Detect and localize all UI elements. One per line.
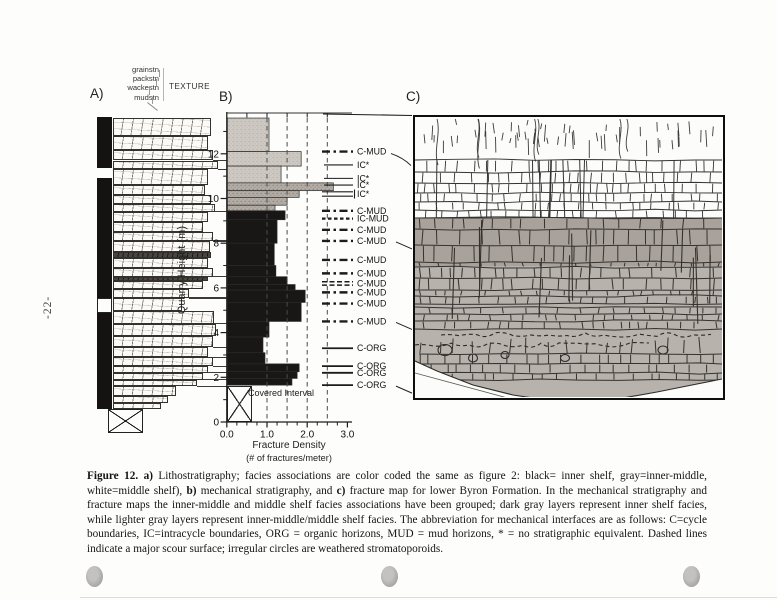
bed-boundary-marker [197,386,227,387]
bed-boundary-marker [213,160,262,161]
fracture-map-drawing [415,117,722,397]
binder-hole-dot [381,566,398,587]
caption-bold-segment: a) [144,470,153,482]
bed-boundary-marker [208,372,227,373]
x-axis-title-line2: (# of fractures/meter) [214,453,364,463]
litho-layer [113,357,213,366]
binder-hole-dot [86,566,103,587]
litho-layer [113,241,210,252]
litho-layer [113,169,208,185]
litho-layer [113,403,161,409]
litho-layer [113,195,211,204]
litho-layer [113,118,211,136]
litho-layer [113,386,176,396]
y-axis-title: Quarry Height (m) [176,190,192,350]
panel-c-label: C) [406,89,420,104]
litho-layer [113,396,168,403]
covered-interval-box-a [108,409,143,433]
bed-boundary-marker [215,211,262,212]
litho-layer [113,324,216,336]
litho-layer [113,298,182,311]
caption-segment: mechanical stratigraphy, and [196,485,336,497]
litho-layer [113,150,213,160]
litho-layer [113,311,214,323]
panel-b-label: B) [219,89,233,104]
x-axis-title-line1: Fracture Density [214,440,364,451]
caption-bold-segment: b) [186,485,196,497]
litho-layer [113,136,208,151]
bed-boundary-marker [189,297,262,298]
binder-hole-dot [683,566,700,587]
figure-12: -22- A) grainstn packstn wackestn mudstn… [0,0,777,600]
covered-interval-label: Covered Interval [248,388,314,398]
litho-layer [113,258,208,268]
bed-boundary-marker [213,240,262,241]
caption-bold-segment: Figure 12. [87,470,138,482]
page-edge-line [80,597,777,598]
bed-boundary-marker [213,276,262,277]
bed-boundary-marker [213,366,227,367]
figure-caption: Figure 12. a) Lithostratigraphy; facies … [87,469,707,556]
bed-boundary-marker [213,347,227,348]
litho-layer [113,161,218,170]
litho-layer [113,336,213,347]
bed-boundary-marker [214,323,262,324]
bed-boundary-marker [218,169,262,170]
litho-layer [113,212,208,222]
litho-layer [113,380,197,387]
litho-layer [113,347,208,357]
litho-layer [113,204,215,212]
litho-layer [113,232,213,241]
litho-layer [113,268,213,277]
scanned-paper-page: -22- A) grainstn packstn wackestn mudstn… [0,0,777,600]
litho-layer [113,373,203,380]
litho-layer [113,366,208,373]
bed-boundary-marker [203,379,227,380]
fracture-map-panel [413,115,725,400]
